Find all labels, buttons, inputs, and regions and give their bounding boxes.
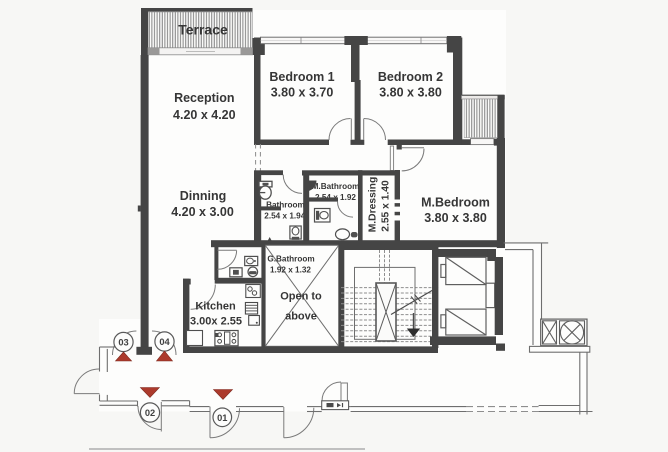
svg-text:1.92 x 1.32: 1.92 x 1.32 bbox=[270, 265, 311, 274]
svg-text:3.80 x 3.80: 3.80 x 3.80 bbox=[379, 86, 442, 100]
svg-text:4.20 x 4.20: 4.20 x 4.20 bbox=[173, 108, 236, 122]
svg-text:Reception: Reception bbox=[174, 91, 234, 105]
svg-text:04: 04 bbox=[159, 337, 170, 347]
svg-text:Bedroom 1: Bedroom 1 bbox=[269, 70, 334, 84]
svg-text:4.20 x 3.00: 4.20 x 3.00 bbox=[171, 205, 234, 219]
svg-text:3.80 x 3.70: 3.80 x 3.70 bbox=[271, 86, 334, 100]
svg-text:Terrace: Terrace bbox=[178, 22, 228, 38]
svg-text:3.00x 2.55: 3.00x 2.55 bbox=[190, 316, 242, 328]
svg-text:2.55 x 1.40: 2.55 x 1.40 bbox=[381, 180, 392, 232]
svg-text:G.Bathroom: G.Bathroom bbox=[267, 255, 314, 264]
svg-text:3.80 x 3.80: 3.80 x 3.80 bbox=[424, 211, 487, 225]
svg-text:Open to: Open to bbox=[280, 291, 322, 303]
svg-text:2.54 x 1.94: 2.54 x 1.94 bbox=[264, 212, 305, 221]
svg-text:Bedroom 2: Bedroom 2 bbox=[378, 70, 443, 84]
svg-text:01: 01 bbox=[217, 413, 227, 423]
svg-text:M.Dressing: M.Dressing bbox=[368, 177, 379, 233]
svg-text:above: above bbox=[285, 310, 317, 322]
svg-text:M.Bedroom: M.Bedroom bbox=[421, 196, 490, 210]
svg-text:Dinning: Dinning bbox=[180, 189, 227, 203]
svg-text:Kitchen: Kitchen bbox=[195, 301, 236, 313]
svg-text:02: 02 bbox=[145, 408, 155, 418]
svg-text:M.Bathroom: M.Bathroom bbox=[312, 182, 360, 191]
svg-text:03: 03 bbox=[118, 338, 128, 348]
